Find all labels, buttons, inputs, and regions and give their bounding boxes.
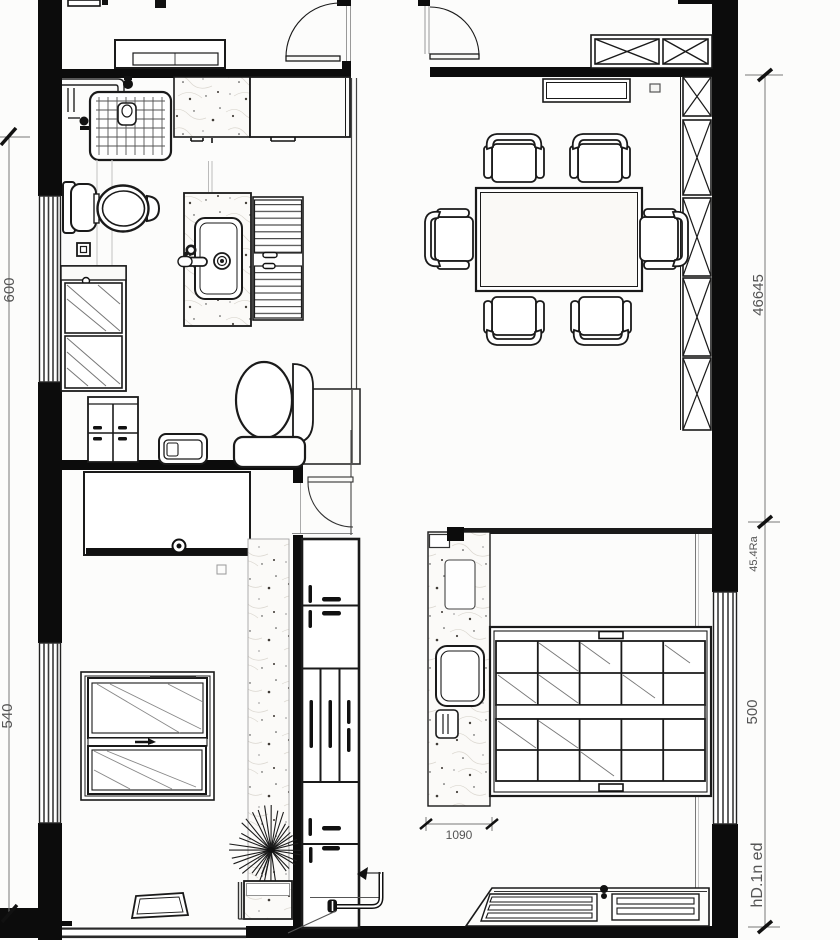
svg-text:1090: 1090 (446, 828, 473, 842)
svg-text:540: 540 (0, 703, 16, 728)
svg-text:hD.1n ed: hD.1n ed (749, 843, 766, 908)
svg-text:500: 500 (744, 699, 761, 724)
svg-text:45.4Ra: 45.4Ra (748, 535, 760, 571)
svg-text:600: 600 (1, 277, 18, 302)
svg-text:46645: 46645 (750, 274, 767, 316)
